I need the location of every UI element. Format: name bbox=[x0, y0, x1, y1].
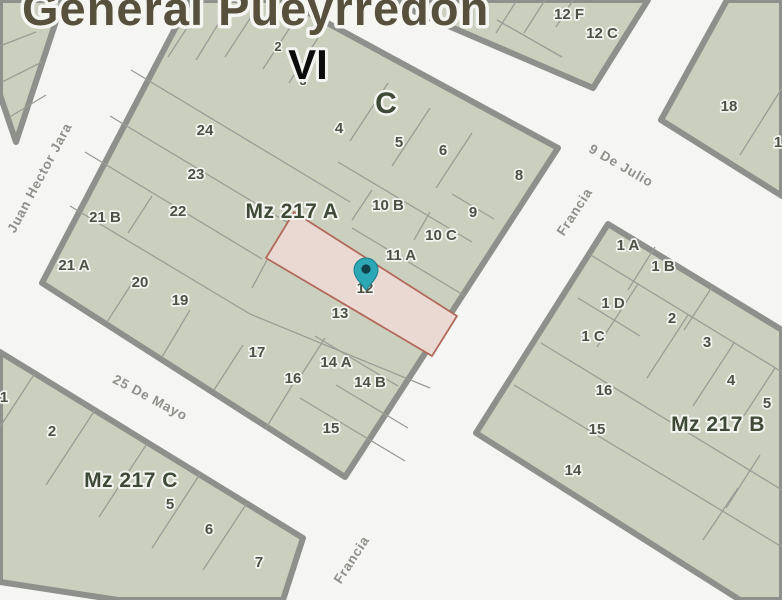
street-label-francia-south: Francia bbox=[331, 533, 373, 586]
parcel-label: 10 C bbox=[425, 227, 457, 244]
parcel-label: 17 bbox=[249, 344, 266, 361]
zone-label-vi: VI bbox=[288, 41, 328, 88]
block-mz217b bbox=[476, 224, 782, 600]
parcel-label: 2 bbox=[48, 423, 56, 440]
parcel-label: 1 bbox=[0, 389, 8, 406]
cadastral-map[interactable]: 2 3 4 5 6 8 9 10 B 10 C 11 A 12 13 14 A … bbox=[0, 0, 782, 600]
zone-label-c: C bbox=[375, 87, 397, 120]
parcel-label: 14 A bbox=[320, 354, 351, 371]
parcel-label: 24 bbox=[197, 122, 214, 139]
parcel-label: 11 A bbox=[386, 247, 416, 264]
parcel-label: 20 bbox=[132, 274, 149, 291]
parcel-label: 13 bbox=[332, 305, 349, 322]
parcel-label: 1 bbox=[774, 134, 782, 151]
parcel-label: 14 bbox=[565, 462, 582, 479]
block-label-mz217b: Mz 217 B bbox=[671, 413, 765, 436]
map-title: General Pueyrredón bbox=[22, 0, 489, 35]
parcel-label: 15 bbox=[589, 421, 606, 438]
parcel-label: 18 bbox=[721, 98, 738, 115]
parcel-label: 4 bbox=[727, 372, 736, 389]
parcel-label: 8 bbox=[515, 167, 523, 184]
parcel-label: 12 F bbox=[554, 6, 584, 23]
street-label-25-de-mayo: 25 De Mayo bbox=[110, 372, 190, 424]
parcel-label: 15 bbox=[323, 420, 340, 437]
parcel-label: 2 bbox=[274, 39, 281, 54]
parcel-label: 6 bbox=[205, 521, 213, 538]
parcel-label: 22 bbox=[170, 203, 187, 220]
parcel-label: 19 bbox=[172, 292, 189, 309]
block-label-mz217c: Mz 217 C bbox=[84, 469, 178, 492]
parcel-label: 14 B bbox=[354, 374, 386, 391]
parcel-label: 5 bbox=[395, 134, 403, 151]
parcel-label: 16 bbox=[285, 370, 302, 387]
parcel-label: 2 bbox=[668, 310, 676, 327]
parcel-label: 21 B bbox=[89, 209, 121, 226]
parcel-label: 1 B bbox=[651, 258, 675, 275]
parcel-label: 3 bbox=[703, 334, 711, 351]
street-label-francia-north: Francia bbox=[554, 185, 596, 238]
parcel-label: 23 bbox=[188, 166, 205, 183]
parcel-label: 9 bbox=[469, 204, 477, 221]
map-canvas[interactable]: 2 3 4 5 6 8 9 10 B 10 C 11 A 12 13 14 A … bbox=[0, 0, 782, 600]
parcel-label: 16 bbox=[596, 382, 613, 399]
parcel-label: 12 C bbox=[586, 25, 618, 42]
street-label-9-de-julio: 9 De Julio bbox=[586, 141, 656, 190]
parcel-label: 6 bbox=[439, 142, 447, 159]
parcel-label: 1 A bbox=[617, 237, 640, 254]
parcel-label: 10 B bbox=[372, 197, 404, 214]
block-label-mz217a: Mz 217 A bbox=[245, 200, 338, 223]
parcel-label: 1 C bbox=[581, 328, 605, 345]
parcel-label: 5 bbox=[763, 395, 771, 412]
parcel-label: 5 bbox=[166, 496, 174, 513]
parcel-label: 21 A bbox=[58, 257, 89, 274]
parcel-label: 4 bbox=[335, 120, 344, 137]
parcel-label: 1 D bbox=[601, 295, 625, 312]
parcel-label: 7 bbox=[255, 554, 263, 571]
